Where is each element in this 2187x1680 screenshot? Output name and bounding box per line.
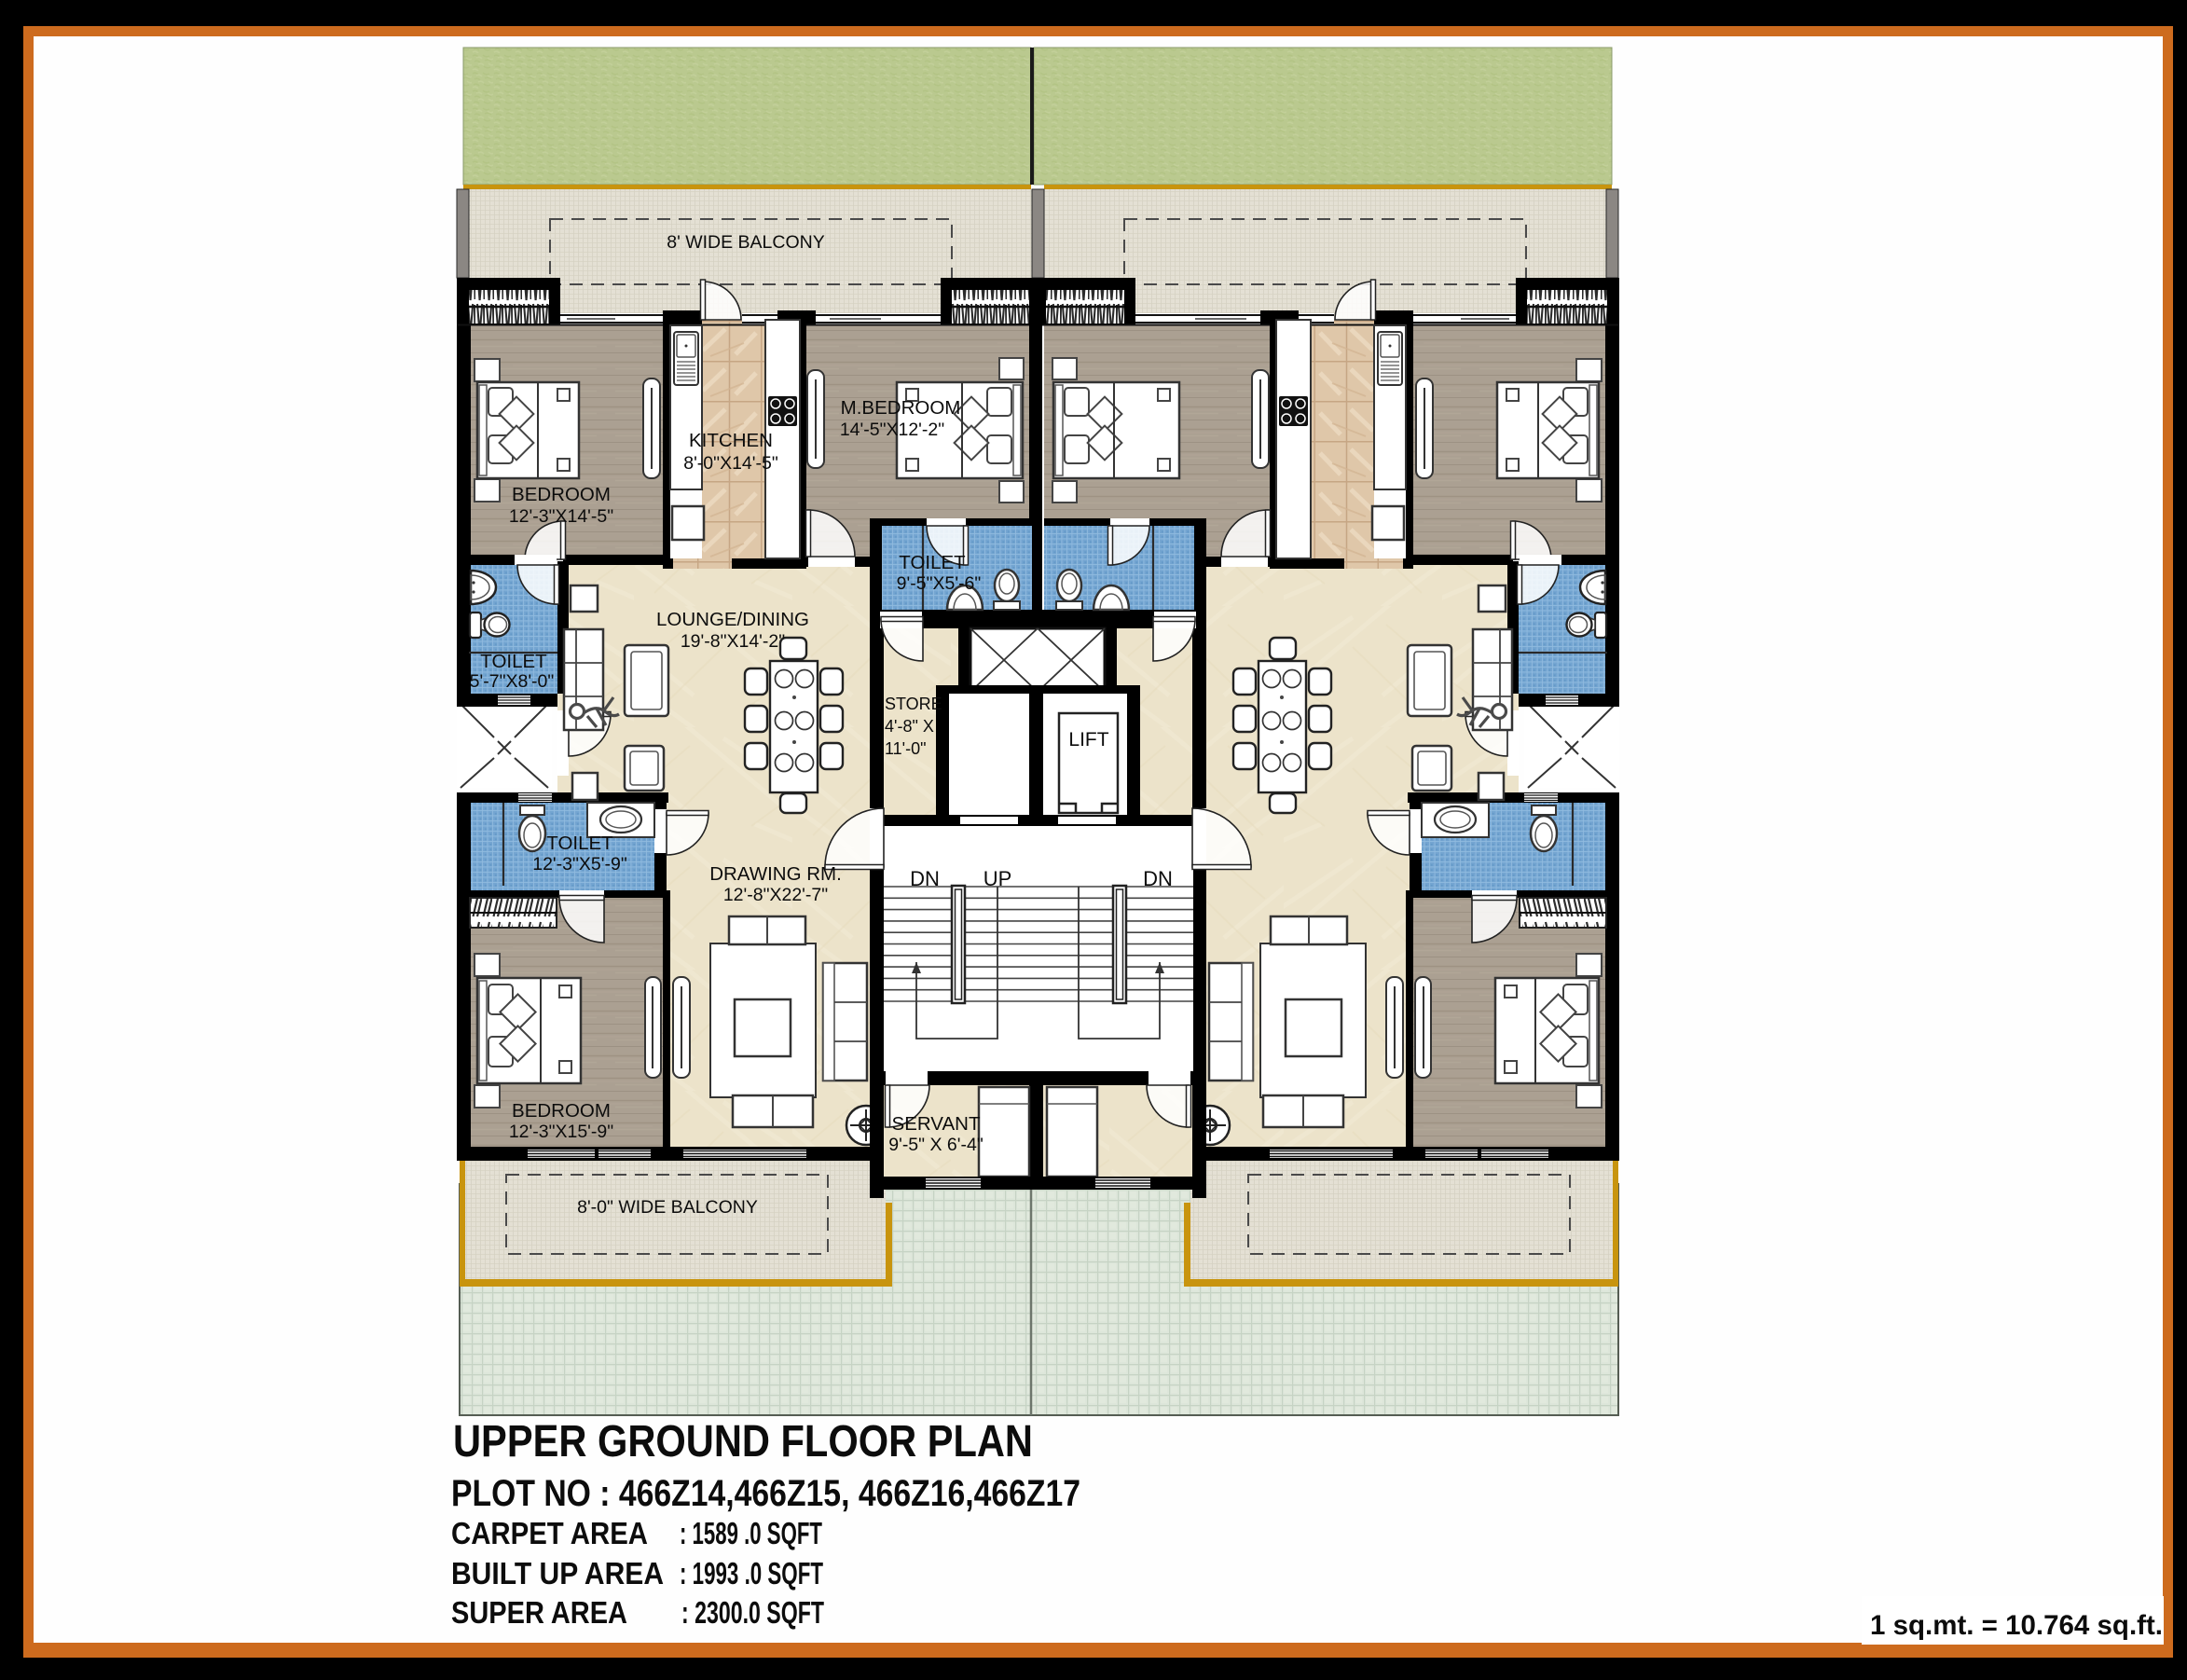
svg-text:STORE: STORE [885,695,942,713]
svg-text:SERVANT: SERVANT [892,1113,981,1135]
svg-text:: 1589 .0 SQFT: : 1589 .0 SQFT [680,1516,822,1550]
svg-text:TOILET: TOILET [899,552,966,573]
svg-text:DN: DN [910,867,940,890]
svg-text:BEDROOM: BEDROOM [512,484,611,505]
svg-text:UPPER GROUND FLOOR PLAN: UPPER GROUND FLOOR PLAN [453,1417,1033,1467]
svg-text:19'-8"X14'-2": 19'-8"X14'-2" [681,631,785,652]
svg-text:PLOT NO : 466Z14,466Z15, 466Z1: PLOT NO : 466Z14,466Z15, 466Z16,466Z17 [451,1473,1080,1514]
svg-text:SUPER AREA: SUPER AREA [451,1595,627,1630]
svg-text:12'-3"X15'-9": 12'-3"X15'-9" [509,1122,613,1142]
svg-text:M.BEDROOM: M.BEDROOM [841,397,961,419]
svg-text:8'-0" WIDE BALCONY: 8'-0" WIDE BALCONY [577,1197,758,1218]
svg-text:4'-8" X: 4'-8" X [885,717,934,736]
svg-text:1 sq.mt. = 10.764 sq.ft.: 1 sq.mt. = 10.764 sq.ft. [1870,1610,2163,1641]
svg-text:11'-0": 11'-0" [885,739,927,758]
svg-text:12'-3"X5'-9": 12'-3"X5'-9" [532,854,627,874]
svg-text:TOILET: TOILET [546,833,613,854]
svg-text:: 2300.0 SQFT: : 2300.0 SQFT [681,1595,824,1630]
svg-text:5'-7"X8'-0": 5'-7"X8'-0" [470,671,555,692]
svg-text:14'-5"X12'-2": 14'-5"X12'-2" [840,420,944,440]
svg-text:BEDROOM: BEDROOM [512,1100,611,1122]
svg-text:UP: UP [983,867,1012,890]
svg-text:8'-0"X14'-5": 8'-0"X14'-5" [683,453,778,474]
svg-text:CARPET AREA: CARPET AREA [451,1516,648,1550]
svg-text:LOUNGE/DINING: LOUNGE/DINING [656,609,809,630]
svg-text:BUILT UP AREA: BUILT UP AREA [451,1556,664,1590]
svg-text:DN: DN [1143,867,1173,890]
svg-text:TOILET: TOILET [480,651,547,672]
svg-text:12'-8"X22'-7": 12'-8"X22'-7" [723,885,828,905]
svg-text:LIFT: LIFT [1068,729,1108,750]
svg-text:KITCHEN: KITCHEN [689,430,773,451]
svg-text:DRAWING RM.: DRAWING RM. [709,863,842,885]
svg-text:9'-5" X 6'-4": 9'-5" X 6'-4" [888,1135,983,1155]
svg-text:12'-3"X14'-5": 12'-3"X14'-5" [509,506,613,527]
svg-text:8' WIDE BALCONY: 8' WIDE BALCONY [667,232,825,253]
svg-text:: 1993 .0 SQFT: : 1993 .0 SQFT [680,1556,823,1590]
svg-text:9'-5"X5'-6": 9'-5"X5'-6" [897,573,982,594]
